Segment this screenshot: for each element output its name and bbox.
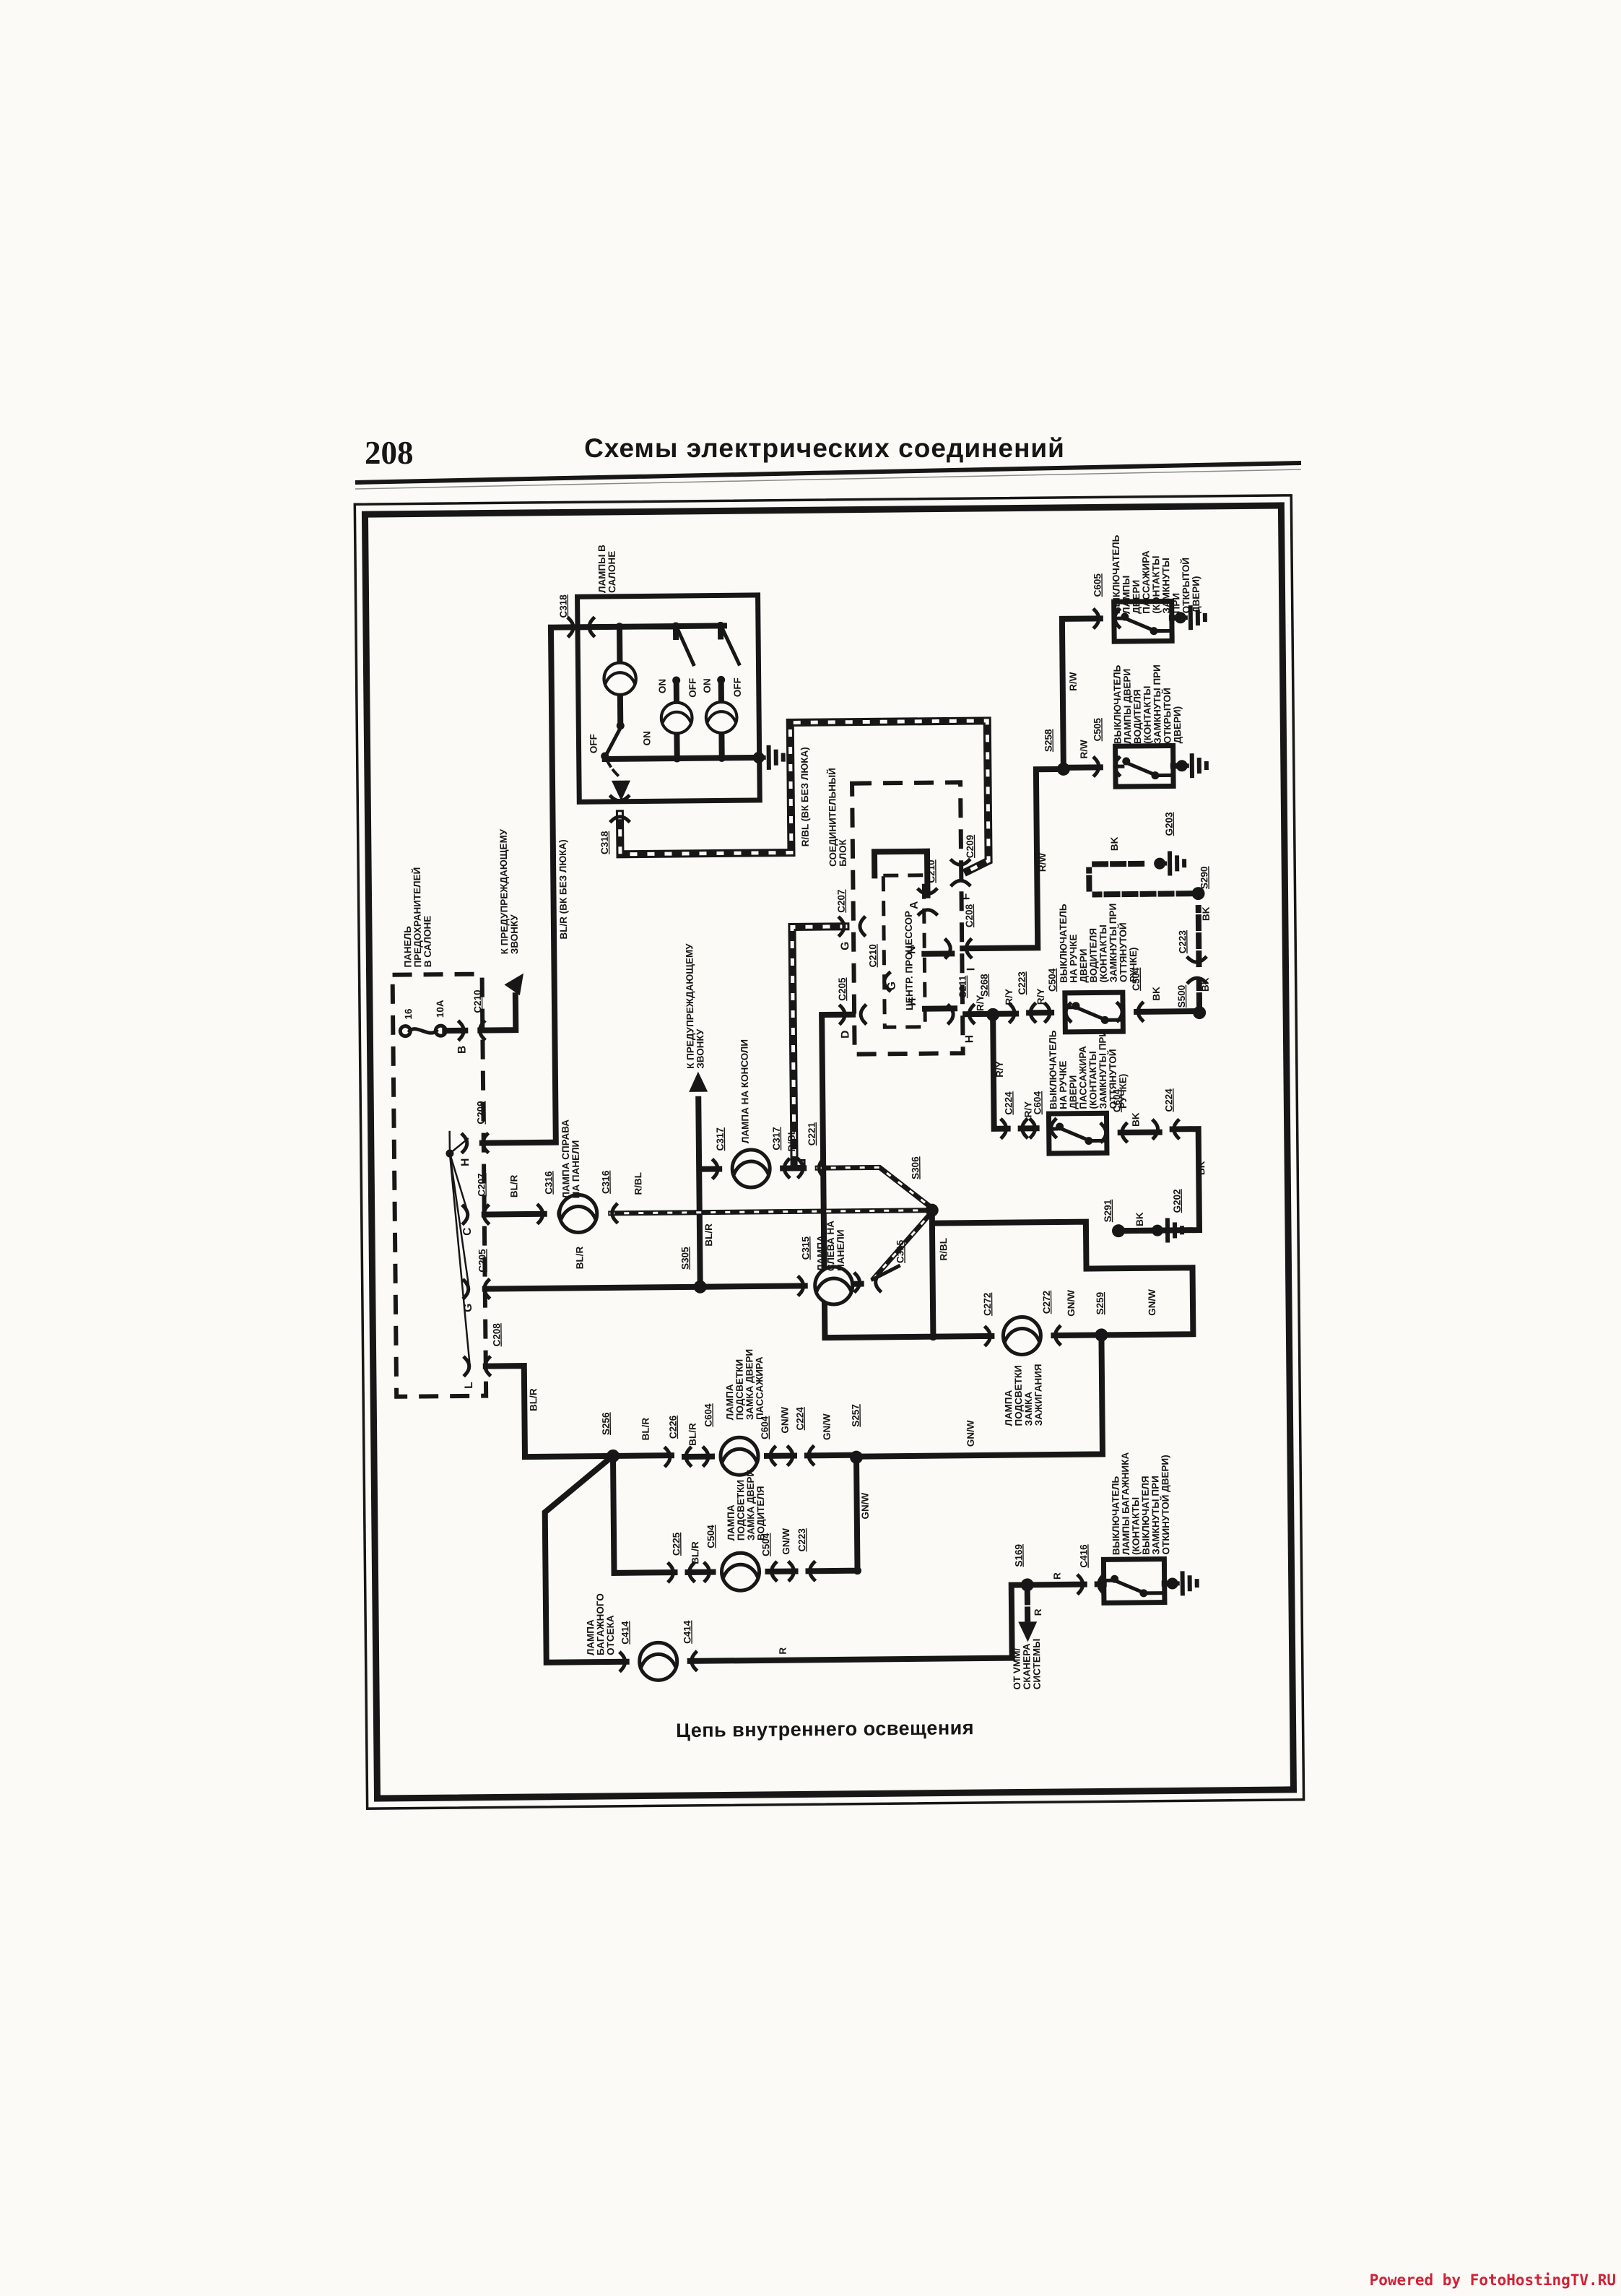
label-fuse_panel: ПАНЕЛЬПРЕДОХРАНИТЕЛЕЙВ САЛОНЕ [401, 867, 433, 967]
label-blr: BL/R [528, 1388, 539, 1411]
label-lamp_right: ЛАМПА СПРАВАНА ПАНЕЛИ [560, 1119, 582, 1199]
label-ry: R/Y [994, 1061, 1005, 1078]
label-c211: C211 [957, 975, 968, 998]
label-c416-text: C416 [1078, 1544, 1089, 1568]
label-s500-text: S500 [1176, 985, 1187, 1008]
bulb-lamp-icon [639, 1642, 677, 1680]
bulb-lamp-icon [814, 1267, 852, 1304]
label-junction_block-text: СОЕДИНИТЕЛЬНЫЙБЛОК [827, 768, 848, 867]
label-c226: C226 [667, 1415, 678, 1439]
label-s268: S268 [979, 974, 990, 997]
label-c316: C316 [543, 1171, 554, 1195]
label-lamp_drv_lock-text: ЛАМПАПОДСВЕТКИЗАМКА ДВЕРИВОДИТЕЛЯ [725, 1470, 766, 1541]
hatched-wire-thin-band [610, 1167, 929, 1281]
label-s258: S258 [1043, 729, 1053, 752]
label-chime-text: К ПРЕДУПРЕЖДАЮЩЕМУЗВОНКУ [684, 943, 705, 1069]
label-g203: G203 [1163, 812, 1174, 836]
label-s256-text: S256 [600, 1412, 611, 1435]
label-c604: C604 [703, 1403, 713, 1427]
bulb-lamp-icon [560, 1195, 597, 1232]
label-pin_g-text: G [839, 942, 851, 950]
label-bk-text: BK [1201, 906, 1212, 921]
label-gnw-text: GN/W [965, 1420, 976, 1447]
arrow-icon [689, 1072, 708, 1092]
label-blr-text: BL/R [703, 1223, 714, 1247]
label-s169: S169 [1013, 1544, 1024, 1567]
label-s306: S306 [910, 1156, 921, 1179]
label-chime-text: К ПРЕДУПРЕЖДАЮЩЕМУЗВОНКУ [498, 828, 520, 954]
label-pin_g: G [462, 1304, 474, 1312]
label-bk: BK [1109, 836, 1120, 851]
label-gnw-text: GN/W [859, 1492, 870, 1519]
label-c224: C224 [794, 1407, 805, 1431]
label-c210: C210 [926, 859, 936, 883]
label-lamp_trunk-text: ЛАМПАБАГАЖНОГООТСЕКА [585, 1593, 616, 1655]
label-c224-text: C224 [1163, 1088, 1174, 1112]
label-junction_block: СОЕДИНИТЕЛЬНЫЙБЛОК [827, 768, 848, 867]
label-rw: R/W [1037, 853, 1048, 872]
label-fuse_num: 16 [403, 1008, 414, 1020]
label-blr: BL/R [687, 1423, 698, 1446]
label-rw-text: R/W [1078, 740, 1089, 759]
label-s290: S290 [1199, 866, 1209, 889]
label-c414-text: C414 [682, 1620, 692, 1644]
label-pin_d-text: D [839, 1031, 851, 1039]
label-rbl_note: R/BL (ВК БЕЗ ЛЮКА) [799, 747, 811, 846]
bulb-lamp-icon [721, 1553, 759, 1590]
dashed-switch-link [607, 761, 620, 778]
label-c604-text: C604 [703, 1403, 713, 1427]
label-c316: C316 [600, 1170, 611, 1194]
label-sw_drv_door: ВЫКЛЮЧАТЕЛЬЛАМПЫ ДВЕРИВОДИТЕЛЯ(КОНТАКТЫЗ… [1111, 664, 1183, 745]
label-cpu-text: ЦЕНТР. ПРОЦЕССОР [903, 911, 915, 1010]
label-lamp_trunk: ЛАМПАБАГАЖНОГООТСЕКА [585, 1593, 616, 1655]
label-c504: C504 [1047, 968, 1058, 992]
label-blr: BL/R [690, 1541, 700, 1564]
label-c414-text: C414 [620, 1621, 630, 1645]
label-pin_f-text: F [960, 893, 973, 901]
contact-dot [1072, 1002, 1079, 1010]
label-c205-text: C205 [837, 977, 848, 1001]
label-lamps_salon: ЛАМПЫ ВСАЛОНЕ [596, 545, 617, 593]
contact-dot [929, 1333, 937, 1340]
contact-dot [1122, 757, 1130, 765]
label-r: R [1033, 1608, 1043, 1616]
label-rw: R/W [1068, 672, 1079, 691]
label-s268-text: S268 [979, 974, 990, 997]
label-g202: G202 [1171, 1189, 1182, 1213]
label-c504-text: C504 [760, 1533, 771, 1556]
label-pin_g-text: G [462, 1304, 474, 1312]
label-pin_d: D [839, 1031, 851, 1039]
label-c210: C210 [867, 944, 878, 967]
label-bk: BK [1130, 1112, 1141, 1127]
label-c604-text: C604 [1111, 1088, 1122, 1112]
contact-dot [1056, 1122, 1064, 1130]
bulb-lamp-icon [732, 1150, 770, 1187]
label-blr: BL/R [574, 1247, 585, 1270]
label-c225-text: C225 [671, 1532, 682, 1556]
label-blr: BL/R [703, 1223, 714, 1247]
label-cpu: ЦЕНТР. ПРОЦЕССОР [903, 911, 915, 1010]
label-pin_g: G [886, 982, 898, 990]
label-gnw: GN/W [965, 1420, 976, 1447]
label-lamp_left: ЛАМПАСЛЕВА НАПАНЕЛИ [815, 1221, 846, 1272]
label-bk-text: BK [1200, 977, 1211, 992]
label-c604: C604 [1111, 1088, 1122, 1112]
label-c210-text: C210 [867, 944, 878, 967]
label-gnw-text: GN/W [1066, 1290, 1077, 1317]
label-pin_c-text: C [461, 1228, 474, 1236]
label-c223-text: C223 [1177, 930, 1188, 953]
label-bk-text: BK [1109, 836, 1120, 851]
label-s291: S291 [1103, 1199, 1113, 1222]
label-rbl-text: R/BL [938, 1238, 949, 1261]
label-fuse_amp: 10А [435, 1000, 446, 1018]
label-r: R [1052, 1572, 1063, 1580]
label-c210-text: C210 [926, 859, 936, 883]
label-c315: C315 [895, 1239, 905, 1263]
fuse-terminal [435, 1026, 446, 1036]
label-on-text: ON [657, 679, 668, 693]
junction-dot [1095, 1328, 1108, 1341]
label-s257-text: S257 [850, 1404, 861, 1427]
label-c207: C207 [476, 1173, 487, 1196]
label-c211-text: C211 [957, 975, 968, 998]
label-c504-text: C504 [705, 1525, 716, 1548]
arrow-icon [504, 968, 531, 995]
contact-dot [1139, 1589, 1147, 1597]
label-c208-text: C208 [964, 904, 975, 927]
contact-dot [1151, 771, 1159, 779]
ground-icon [1154, 851, 1184, 875]
label-c316-text: C316 [543, 1171, 554, 1195]
label-c604: C604 [1032, 1091, 1043, 1114]
label-c504: C504 [705, 1525, 716, 1548]
label-c209: C209 [965, 835, 975, 858]
label-off-text: OFF [732, 677, 743, 697]
label-blr: BL/R [508, 1174, 519, 1197]
label-lamp_console: ЛАМПА НА КОНСОЛИ [739, 1039, 750, 1143]
label-ry-text: R/Y [1004, 989, 1014, 1005]
label-c604: C604 [759, 1416, 770, 1439]
label-c504: C504 [760, 1533, 771, 1556]
label-c317-text: C317 [771, 1127, 782, 1150]
contact-dot [446, 1150, 453, 1158]
label-gnw-text: GN/W [821, 1413, 832, 1440]
label-pin_h: H [906, 998, 918, 1006]
label-rbl: R/BL [938, 1238, 949, 1261]
junction-dot [926, 1204, 939, 1217]
label-c505: C505 [1092, 718, 1103, 742]
label-gnw: GN/W [1147, 1289, 1157, 1316]
label-c224-text: C224 [794, 1407, 805, 1431]
label-blr-text: BL/R [640, 1418, 651, 1441]
contact-dot [672, 676, 680, 684]
label-pin_i-text: I [965, 968, 978, 971]
label-pin_n: N [905, 946, 918, 954]
label-rbl_note-text: R/BL (ВК БЕЗ ЛЮКА) [799, 747, 811, 846]
diagram-tilt-group: ЛАМПЫ ВСАЛОНЕC318C318OFFONONOFFONOFFBL/R… [355, 495, 1303, 1808]
label-chime: К ПРЕДУПРЕЖДАЮЩЕМУЗВОНКУ [684, 943, 705, 1069]
label-sw_trunk-text: ВЫКЛЮЧАТЕЛЬЛАМПЫ БАГАЖНИКА(КОНТАКТЫВЫКЛЮ… [1110, 1452, 1171, 1555]
contact-dot [615, 623, 623, 631]
label-blr-text: BL/R [508, 1174, 519, 1197]
contact-dot [1111, 1575, 1118, 1583]
schematic-scan: 208 Схемы электрических соединений ЛАМПЫ… [0, 0, 1621, 2296]
label-on: ON [702, 678, 713, 693]
label-lamp_right-text: ЛАМПА СПРАВАНА ПАНЕЛИ [560, 1119, 582, 1199]
label-c604-text: C604 [759, 1416, 770, 1439]
label-on: ON [657, 679, 668, 693]
junction-dot [1057, 763, 1070, 776]
junction-dot [607, 1450, 620, 1463]
ground-icon [1176, 753, 1207, 778]
label-c207-text: C207 [835, 889, 846, 912]
label-pin_i: I [965, 968, 978, 971]
scanned-manual-page: 208 Схемы электрических соединений ЛАМПЫ… [0, 0, 1621, 2296]
label-rw: R/W [1078, 740, 1089, 759]
label-sw_pass_door: ВЫКЛЮЧАТЕЛЬЛАМПЫДВЕРИПАССАЖИРА(КОНТАКТЫЗ… [1111, 534, 1201, 614]
label-lamp_drv_lock: ЛАМПАПОДСВЕТКИЗАМКА ДВЕРИВОДИТЕЛЯ [725, 1470, 766, 1541]
label-pin_a: A [908, 901, 921, 909]
label-blr: BL/R [640, 1418, 651, 1441]
label-s291-text: S291 [1103, 1199, 1113, 1222]
label-lamp_pass_lock: ЛАМПАПОДСВЕТКИЗАМКА ДВЕРИПАССАЖИРА [724, 1349, 765, 1421]
label-c205-text: C205 [477, 1249, 487, 1273]
label-fuse_panel-text: ПАНЕЛЬПРЕДОХРАНИТЕЛЕЙВ САЛОНЕ [401, 867, 433, 967]
label-s259: S259 [1095, 1292, 1105, 1315]
label-gnw: GN/W [1066, 1290, 1077, 1317]
bulb-lamp-icon [661, 702, 692, 733]
label-c505-text: C505 [1092, 718, 1103, 742]
label-off-text: OFF [588, 734, 599, 753]
label-chime: К ПРЕДУПРЕЖДАЮЩЕМУЗВОНКУ [498, 828, 520, 954]
label-gnw: GN/W [859, 1492, 870, 1519]
fuse-terminal [400, 1026, 410, 1036]
label-r: R [778, 1647, 788, 1655]
label-pin_h: H [963, 1035, 975, 1043]
label-sw_pass_door-text: ВЫКЛЮЧАТЕЛЬЛАМПЫДВЕРИПАССАЖИРА(КОНТАКТЫЗ… [1111, 534, 1201, 614]
label-c504: C504 [1131, 967, 1142, 991]
label-ry-text: R/Y [994, 1061, 1005, 1078]
label-pin_b: B [456, 1046, 469, 1054]
label-c317: C317 [715, 1127, 726, 1151]
label-lamp_pass_lock-text: ЛАМПАПОДСВЕТКИЗАМКА ДВЕРИПАССАЖИРА [724, 1349, 765, 1421]
label-c316-text: C316 [600, 1170, 611, 1194]
label-c504-text: C504 [1047, 968, 1058, 992]
label-c318: C318 [599, 831, 610, 854]
label-c318: C318 [558, 594, 569, 618]
junction-dot [694, 1281, 707, 1294]
label-c208-text: C208 [491, 1323, 502, 1347]
label-on-text: ON [641, 731, 652, 745]
label-c226-text: C226 [667, 1415, 678, 1439]
label-c209-text: C209 [965, 835, 975, 858]
contact-dot [717, 676, 725, 684]
label-rw-text: R/W [1037, 853, 1048, 872]
label-c224: C224 [1003, 1091, 1014, 1115]
label-on-text: ON [702, 678, 713, 693]
label-c416: C416 [1078, 1544, 1089, 1568]
label-off: OFF [588, 734, 599, 753]
label-c315: C315 [800, 1236, 811, 1260]
junction-dot [986, 1008, 999, 1021]
label-off: OFF [687, 678, 698, 698]
label-c225: C225 [671, 1532, 682, 1556]
label-c208: C208 [491, 1323, 502, 1347]
label-gnw-text: GN/W [1147, 1289, 1157, 1316]
label-bk-text: BK [1196, 1161, 1207, 1175]
diagram-caption: Цепь внутреннего освещения [676, 1717, 974, 1741]
label-r-text: R [1052, 1572, 1063, 1580]
label-c205: C205 [837, 977, 848, 1001]
label-r-text: R [1033, 1608, 1043, 1616]
label-pin_h: H [459, 1158, 471, 1166]
label-blr-text: BL/R [528, 1388, 539, 1411]
contact-dot [617, 722, 625, 729]
label-sw_drv_handle-text: ВЫКЛЮЧАТЕЛЬНА РУЧКЕДВЕРИВОДИТЕЛЯ(КОНТАКТ… [1058, 903, 1139, 983]
label-c318-text: C318 [599, 831, 610, 854]
label-bk: BK [1134, 1212, 1145, 1226]
label-ry: R/Y [1035, 989, 1046, 1005]
component-box [1065, 992, 1124, 1032]
label-blr_note-text: BL/R (ВК БЕЗ ЛЮКА) [557, 839, 569, 939]
label-s258-text: S258 [1043, 729, 1053, 752]
label-g202-text: G202 [1171, 1189, 1182, 1213]
label-s259-text: S259 [1095, 1292, 1105, 1315]
label-r-text: R [778, 1647, 788, 1655]
label-on: ON [641, 731, 652, 745]
label-c317: C317 [771, 1127, 782, 1150]
label-pin_g: G [839, 942, 851, 950]
label-lamps_salon-text: ЛАМПЫ ВСАЛОНЕ [596, 545, 617, 593]
label-bk: BK [1201, 906, 1212, 921]
watermark: Powered by FotoHostingTV.RU [1370, 2271, 1616, 2289]
label-c221-text: C221 [807, 1122, 817, 1145]
label-lamp_console-text: ЛАМПА НА КОНСОЛИ [739, 1039, 750, 1143]
label-blr-text: BL/R [574, 1247, 585, 1270]
label-c205: C205 [477, 1249, 487, 1273]
label-c605-text: C605 [1092, 573, 1103, 597]
label-c223: C223 [1177, 930, 1188, 953]
label-bk: BK [1196, 1161, 1207, 1175]
label-lamp_left-text: ЛАМПАСЛЕВА НАПАНЕЛИ [815, 1221, 846, 1272]
label-c272: C272 [1041, 1291, 1052, 1314]
label-pin_n-text: N [905, 946, 918, 954]
label-pin_b-text: B [456, 1046, 469, 1054]
contact-dot [1150, 627, 1157, 635]
label-s169-text: S169 [1013, 1544, 1024, 1567]
label-c317-text: C317 [715, 1127, 726, 1151]
label-c318-text: C318 [558, 594, 569, 618]
label-gnw: GN/W [781, 1528, 791, 1555]
label-c221: C221 [807, 1122, 817, 1145]
label-c272-text: C272 [1041, 1291, 1052, 1314]
junction-dot [850, 1451, 863, 1464]
label-c272-text: C272 [982, 1293, 993, 1316]
contact-dot [853, 1567, 861, 1574]
label-pin_h-text: H [459, 1158, 471, 1166]
junction-dot [1112, 1224, 1125, 1237]
label-vmm: ОТ VMM/СКАНЕРАСИСТЕМЫ [1011, 1639, 1042, 1690]
label-c414: C414 [682, 1620, 692, 1644]
label-pin_l-text: L [463, 1382, 475, 1389]
label-c208: C208 [964, 904, 975, 927]
contact-dot [601, 752, 609, 760]
label-c209-text: C209 [475, 1101, 486, 1124]
label-pin_l: L [463, 1382, 475, 1389]
label-c209: C209 [475, 1101, 486, 1124]
label-blr-text: BL/R [687, 1423, 698, 1446]
bulb-lamp-icon [706, 702, 737, 733]
label-gnw-text: GN/W [781, 1528, 791, 1555]
junction-dot [1193, 1006, 1206, 1019]
hatched-wire-thin-ticks [610, 1167, 929, 1281]
label-c604-text: C604 [1032, 1091, 1043, 1114]
label-c207: C207 [835, 889, 846, 912]
label-c210-text: C210 [472, 989, 483, 1013]
label-c224-text: C224 [1003, 1091, 1014, 1115]
bulb-lamp-icon [721, 1437, 758, 1475]
label-s290-text: S290 [1199, 866, 1209, 889]
label-bk-text: BK [1130, 1112, 1141, 1127]
schematic-content: ЛАМПЫ ВСАЛОНЕC318C318OFFONONOFFONOFFBL/R… [388, 534, 1219, 1696]
label-pin_g-text: G [886, 982, 898, 990]
label-bk: BK [1200, 977, 1211, 992]
label-c504-text: C504 [1131, 967, 1142, 991]
label-lamp_ign-text: ЛАМПАПОДСВЕТКИЗАМКАЗАЖИГАНИЯ [1003, 1364, 1044, 1426]
label-fuse_amp-text: 10А [435, 1000, 446, 1018]
label-sw_trunk: ВЫКЛЮЧАТЕЛЬЛАМПЫ БАГАЖНИКА(КОНТАКТЫВЫКЛЮ… [1110, 1452, 1171, 1555]
contact-dot [716, 622, 724, 630]
label-c315-text: C315 [895, 1239, 905, 1263]
label-ry: R/Y [1004, 989, 1014, 1005]
label-g203-text: G203 [1163, 812, 1174, 836]
label-vmm-text: ОТ VMM/СКАНЕРАСИСТЕМЫ [1011, 1639, 1042, 1690]
label-pin_f: F [960, 893, 973, 901]
label-s305-text: S305 [679, 1247, 690, 1270]
label-c210: C210 [472, 989, 483, 1013]
label-rw-text: R/W [1068, 672, 1079, 691]
label-lamp_ign: ЛАМПАПОДСВЕТКИЗАМКАЗАЖИГАНИЯ [1003, 1364, 1044, 1426]
label-gnw: GN/W [821, 1413, 832, 1440]
label-rbl: R/BL [633, 1172, 643, 1195]
label-c224: C224 [1163, 1088, 1174, 1112]
label-s256: S256 [600, 1412, 611, 1435]
label-bk-text: BK [1134, 1212, 1145, 1226]
bulb-lamp-icon [604, 662, 636, 695]
label-off: OFF [732, 677, 743, 697]
label-pin_h-text: H [963, 1035, 975, 1043]
label-c223: C223 [1017, 971, 1027, 995]
contact-dot [1101, 1016, 1109, 1024]
label-s306-text: S306 [910, 1156, 921, 1179]
label-bk: BK [1151, 987, 1162, 1001]
label-blr-text: BL/R [690, 1541, 700, 1564]
label-fuse_num-text: 16 [403, 1008, 414, 1020]
label-c223-text: C223 [1017, 971, 1027, 995]
label-rbl: R/BL [786, 1129, 797, 1152]
label-ry-text: R/Y [1035, 989, 1046, 1005]
label-pin_a-text: A [908, 901, 921, 909]
label-c207-text: C207 [476, 1173, 487, 1196]
label-c223: C223 [796, 1528, 807, 1552]
label-s257: S257 [850, 1404, 861, 1427]
contact-dot [673, 754, 681, 762]
label-gnw-text: GN/W [779, 1407, 790, 1434]
contact-dot [672, 622, 679, 630]
